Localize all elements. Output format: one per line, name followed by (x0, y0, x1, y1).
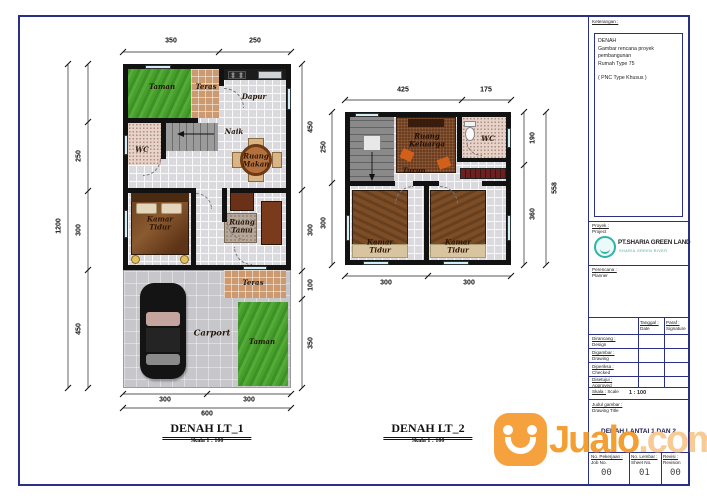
skala-label: Skala : (592, 389, 606, 394)
tv-cabinet (408, 119, 444, 127)
window (124, 210, 128, 238)
wall-segment (230, 188, 291, 193)
window (363, 261, 389, 265)
dim-label: 350 (308, 337, 315, 349)
window (346, 215, 350, 241)
note-line: Gambar rencana proyek pembangunan (598, 46, 679, 61)
diperiksa-label: Diperiksa : (592, 364, 614, 369)
car-roof (146, 328, 180, 352)
note-line: DENAH (598, 38, 679, 46)
dim-label: 350 (165, 38, 177, 45)
jualo-logo-icon (494, 413, 547, 466)
scale-section: Skala : Scale 1 : 100 (589, 388, 688, 400)
plan1-garden-top (128, 69, 191, 118)
bedside-table (180, 255, 189, 264)
bedside-table (131, 255, 140, 264)
window (287, 88, 291, 110)
dim-label: 300 (243, 397, 255, 404)
dirancang-label: Dirancang : (592, 336, 616, 341)
wall-segment (424, 186, 429, 260)
room-label-wc: WC (135, 146, 148, 154)
dim-label: 250 (321, 141, 328, 153)
stair-landing (363, 135, 381, 151)
dim-label: 600 (201, 411, 213, 418)
scale-value: 1 : 100 (629, 390, 646, 396)
note-line: ( PNC Type Khusus ) (598, 75, 679, 83)
revision-value: 00 (670, 468, 681, 478)
room-label-ruang-makan: Ruang Makan (240, 152, 272, 167)
car-windshield (146, 312, 180, 326)
disetujui-label: Disetujui : (592, 377, 612, 382)
window (355, 113, 379, 117)
dim-label: 300 (463, 280, 475, 287)
room-label-taman: Taman (149, 83, 175, 91)
plan1-terrace-top (191, 69, 219, 118)
window (124, 135, 128, 155)
notes-box: DENAH Gambar rencana proyek pembangunan … (594, 33, 683, 217)
dim-label: 360 (530, 208, 537, 220)
jualo-watermark: Jualo.com (549, 419, 707, 462)
dim-label: 450 (76, 323, 83, 335)
project-label: Project (592, 229, 606, 234)
window (443, 261, 469, 265)
room-label-kamar-tidur-right: Kamar Tidur (440, 238, 476, 253)
armchair (230, 191, 254, 211)
wall-segment (219, 64, 224, 86)
planner-section: Perencana : Planner (589, 266, 688, 318)
drawing-sheet: Taman Teras Dapur WC Naik Ruang Makan Ka… (0, 0, 707, 500)
title-block: Keterangan : DENAH Gambar rencana proyek… (588, 17, 688, 484)
plan1-stairs (166, 123, 218, 151)
plan1-scale: Skala 1 : 100 (191, 438, 224, 444)
jualo-brand-text: Jualo (549, 419, 638, 461)
toilet-icon (465, 127, 475, 141)
judul-label: Judul gambar : (592, 402, 622, 407)
dim-label: 300 (159, 397, 171, 404)
dim-label: 300 (308, 224, 315, 236)
pillow (136, 203, 157, 214)
dim-label: 250 (249, 38, 261, 45)
table-row-divider (589, 362, 688, 363)
room-label-kamar-tidur: Kamar Tidur (142, 215, 178, 230)
room-label-wc2: WC (481, 135, 494, 143)
company-tagline: SHARIA GREEN RIVER (619, 249, 667, 253)
car-rear-window (146, 354, 180, 365)
wall-segment (457, 158, 511, 162)
wall-segment (161, 123, 166, 159)
keterangan-label: Keterangan : (592, 19, 618, 24)
proyek-label: Proyek : (592, 223, 609, 228)
dim-label: 100 (308, 279, 315, 291)
window (145, 65, 171, 69)
room-label-dapur: Dapur (242, 93, 266, 101)
job-no-value: 00 (601, 468, 612, 478)
dim-label: 300 (321, 217, 328, 229)
stairs-down-label: Turun (402, 167, 426, 175)
room-label-taman-bottom: Taman (249, 338, 275, 346)
room-label-carport: Carport (194, 329, 231, 338)
wall-segment (222, 188, 227, 222)
paraf-header: Paraf : (666, 320, 680, 325)
room-label-teras-bottom: Teras (242, 279, 263, 287)
note-line: Rumah Type 75 (598, 61, 679, 69)
pillow (161, 203, 182, 214)
stairs-up-label: Naik (225, 128, 243, 136)
stove-icon (228, 71, 246, 79)
dim-label: 425 (397, 87, 409, 94)
perencana-label: Perencana : (592, 267, 617, 272)
company-name: PT.SHARIA GREEN LAND (618, 239, 690, 246)
notes-section: Keterangan : DENAH Gambar rencana proyek… (589, 17, 688, 222)
window (507, 128, 511, 148)
room-label-teras: Teras (195, 83, 216, 91)
dining-chair (272, 152, 282, 168)
company-logo (594, 236, 616, 258)
sheet-no-value: 01 (639, 468, 650, 478)
project-section: Proyek : Project PT.SHARIA GREEN LAND SH… (589, 222, 688, 266)
sofa (261, 201, 282, 245)
dim-label: 300 (76, 224, 83, 236)
dim-label: 558 (552, 182, 559, 194)
dim-label: 250 (76, 150, 83, 162)
wall-segment (457, 112, 462, 162)
dim-label: 175 (480, 87, 492, 94)
dim-label: 450 (308, 121, 315, 133)
plan2-scale: Skala 1 : 100 (412, 438, 445, 444)
dim-label: 190 (530, 132, 537, 144)
wall-segment (482, 181, 511, 186)
window (243, 266, 267, 270)
jualo-tld-text: .com (638, 419, 707, 461)
table-row-divider (589, 334, 688, 335)
drawing-title-sub: Drawing Title (592, 408, 619, 413)
room-label-kamar-tidur-left: Kamar Tidur (362, 238, 398, 253)
dresser (460, 168, 506, 179)
wall-segment (123, 188, 196, 193)
digambar-label: Digambar : (592, 350, 614, 355)
dim-label: 1200 (56, 218, 63, 234)
dim-label: 300 (380, 280, 392, 287)
sink-icon (258, 71, 282, 79)
window (507, 215, 511, 241)
wall-segment (123, 64, 128, 270)
tanggal-header: Tanggal : (640, 320, 659, 325)
room-label-ruang-keluarga: Ruang Keluarga (406, 132, 448, 147)
approval-table: Tanggal :Date Paraf :Signature Dirancang… (589, 318, 688, 388)
table-row-divider (589, 348, 688, 349)
wall-segment (345, 112, 350, 265)
planner-label: Planner (592, 273, 608, 278)
bed-headboard (131, 193, 189, 202)
wall-segment (345, 181, 395, 186)
room-label-ruang-tamu: Ruang Tamu (225, 218, 259, 233)
